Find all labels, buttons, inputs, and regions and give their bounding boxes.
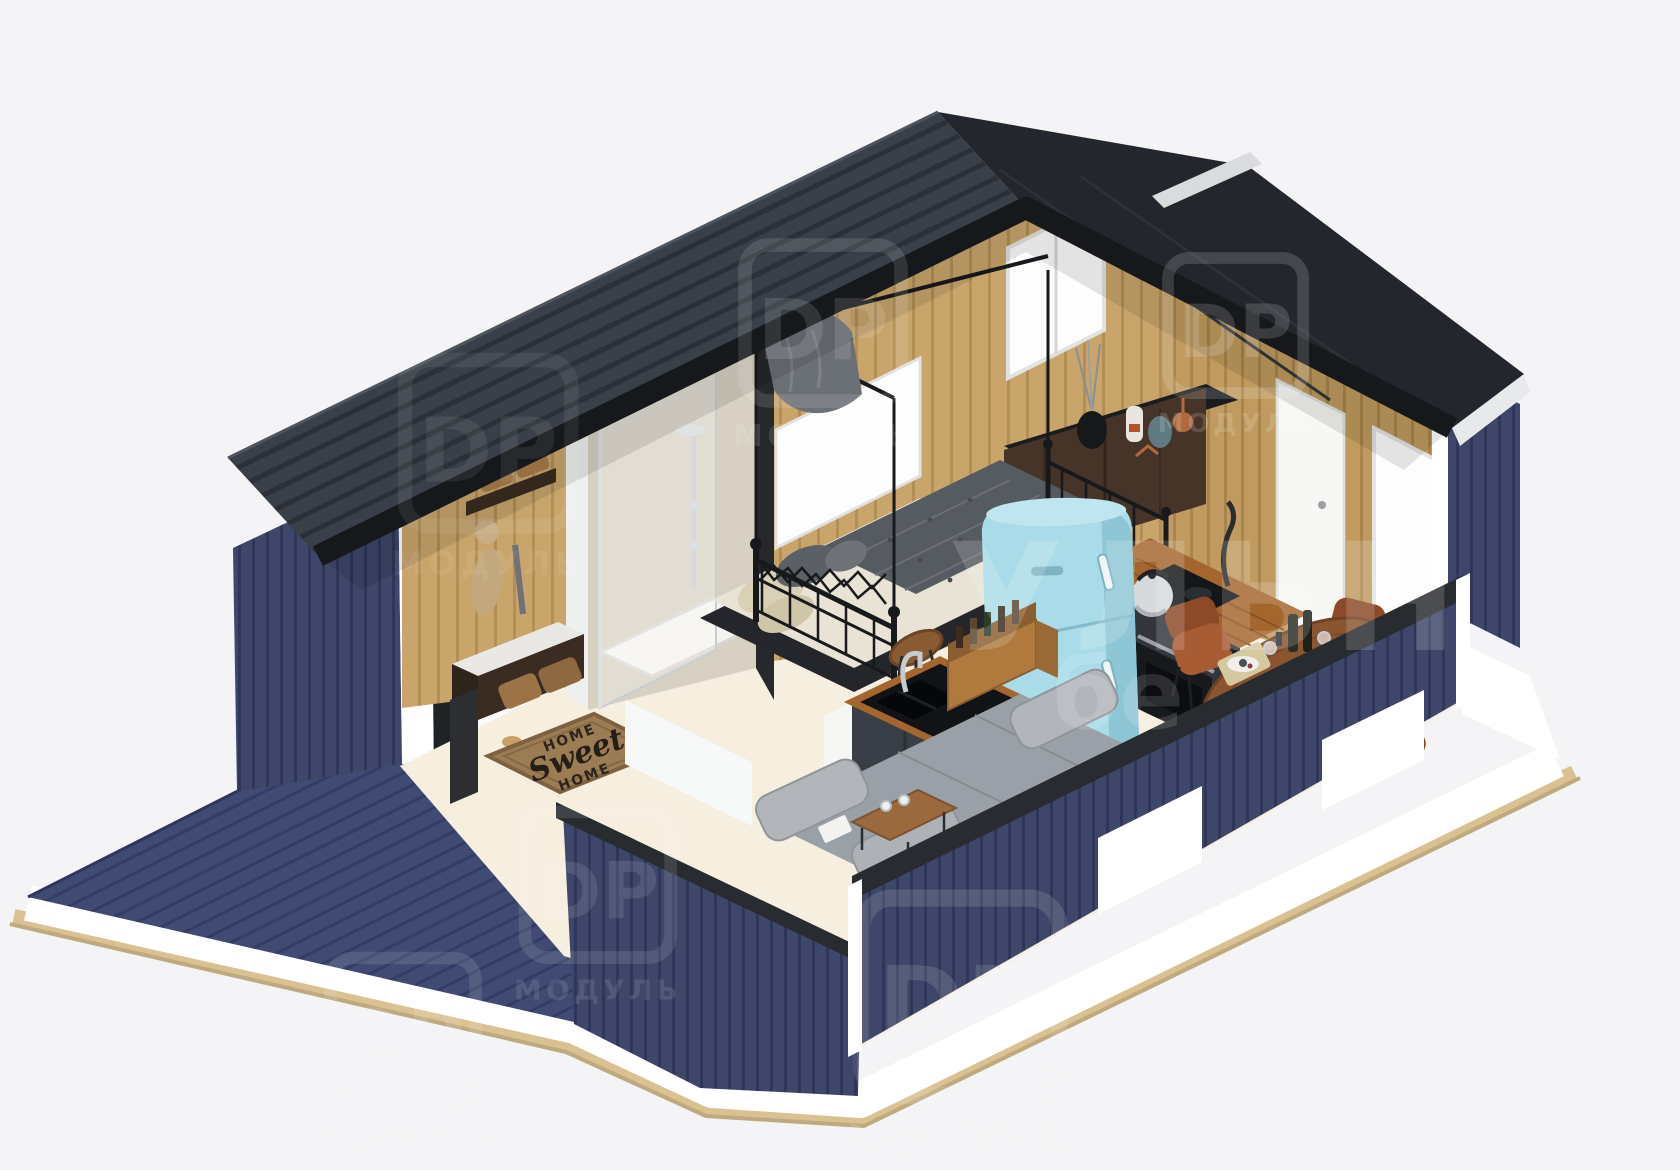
watermark-text-large: УЛЬН <box>948 512 1468 686</box>
watermark-text-small: бе <box>1052 639 1184 751</box>
entry-locker <box>450 688 478 804</box>
isometric-house-render: DP МОДУЛЬ HOME <box>0 0 1680 1170</box>
door-handle <box>1318 501 1326 509</box>
render-canvas: DP МОДУЛЬ HOME <box>0 0 1680 1170</box>
